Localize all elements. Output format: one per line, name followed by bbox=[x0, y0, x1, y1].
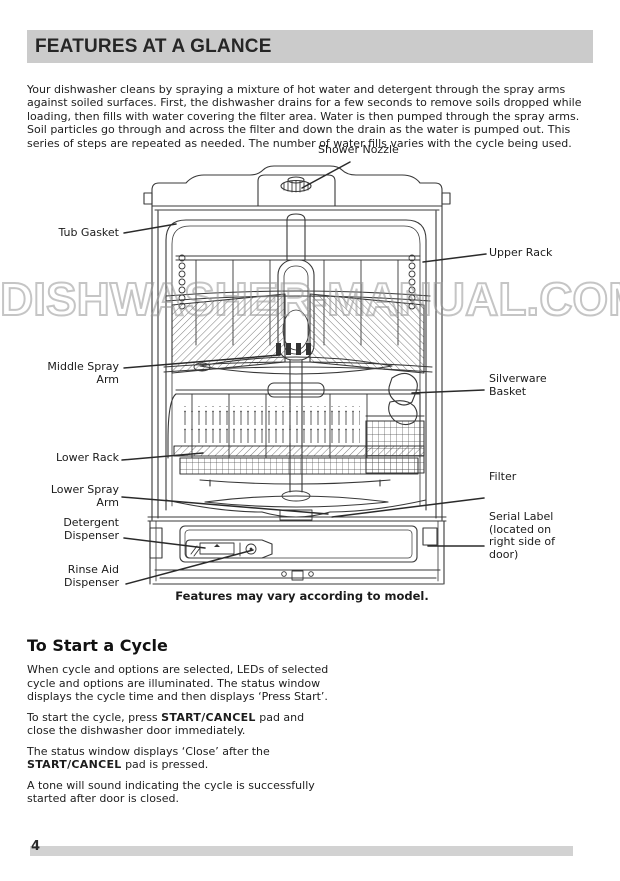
silverware-basket-part bbox=[366, 373, 424, 473]
page-title: FEATURES AT A GLANCE bbox=[27, 30, 593, 63]
start-cycle-paragraphs: When cycle and options are selected, LED… bbox=[27, 663, 329, 806]
label-middle-spray-arm: Middle Spray Arm bbox=[19, 361, 119, 386]
label-tub-gasket: Tub Gasket bbox=[19, 227, 119, 240]
label-lower-spray-arm: Lower Spray Arm bbox=[19, 484, 119, 509]
lid bbox=[144, 166, 450, 210]
section-header-bar: FEATURES AT A GLANCE bbox=[27, 30, 593, 63]
start-cycle-paragraph: A tone will sound indicating the cycle i… bbox=[27, 779, 329, 806]
start-cycle-heading: To Start a Cycle bbox=[27, 636, 329, 655]
diagram-caption: Features may vary according to model. bbox=[150, 589, 454, 603]
upper-rack-part bbox=[164, 255, 432, 373]
label-filter: Filter bbox=[489, 471, 604, 484]
label-shower-nozzle: Shower Nozzle bbox=[318, 144, 399, 157]
tub-floor-and-filter bbox=[166, 491, 426, 520]
label-lower-rack: Lower Rack bbox=[19, 452, 119, 465]
label-upper-rack: Upper Rack bbox=[489, 247, 604, 260]
start-cycle-paragraph: The status window displays ‘Close’ after… bbox=[27, 745, 329, 772]
label-rinse-aid-dispenser: Rinse Aid Dispenser bbox=[19, 564, 119, 589]
footer-bar bbox=[30, 846, 573, 856]
start-cycle-paragraph: When cycle and options are selected, LED… bbox=[27, 663, 329, 704]
page-number: 4 bbox=[31, 839, 40, 854]
start-cycle-section: To Start a Cycle When cycle and options … bbox=[27, 636, 329, 813]
start-cycle-paragraph: To start the cycle, press START/CANCEL p… bbox=[27, 711, 329, 738]
label-serial-label: Serial Label (located on right side of d… bbox=[489, 511, 604, 561]
door bbox=[148, 517, 446, 584]
manual-page: FEATURES AT A GLANCE Your dishwasher cle… bbox=[0, 0, 620, 881]
shower-nozzle-part bbox=[281, 177, 311, 192]
label-silverware-basket: Silverware Basket bbox=[489, 373, 604, 398]
label-detergent-dispenser: Detergent Dispenser bbox=[19, 517, 119, 542]
